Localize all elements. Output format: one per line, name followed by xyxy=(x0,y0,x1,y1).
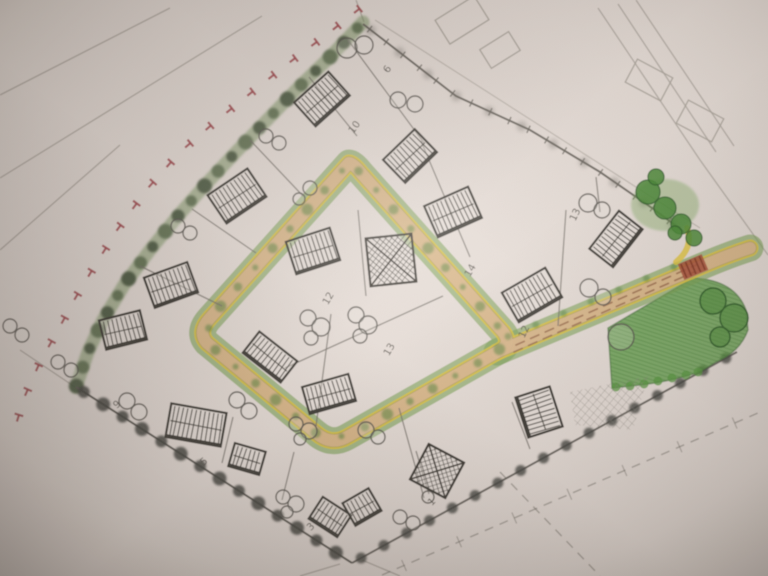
site-plan-photo: 61012131413129531 xyxy=(0,0,768,576)
photo-vignette xyxy=(0,0,768,576)
paper-grain xyxy=(0,0,768,576)
site-plan-drawing: 61012131413129531 xyxy=(0,0,768,576)
